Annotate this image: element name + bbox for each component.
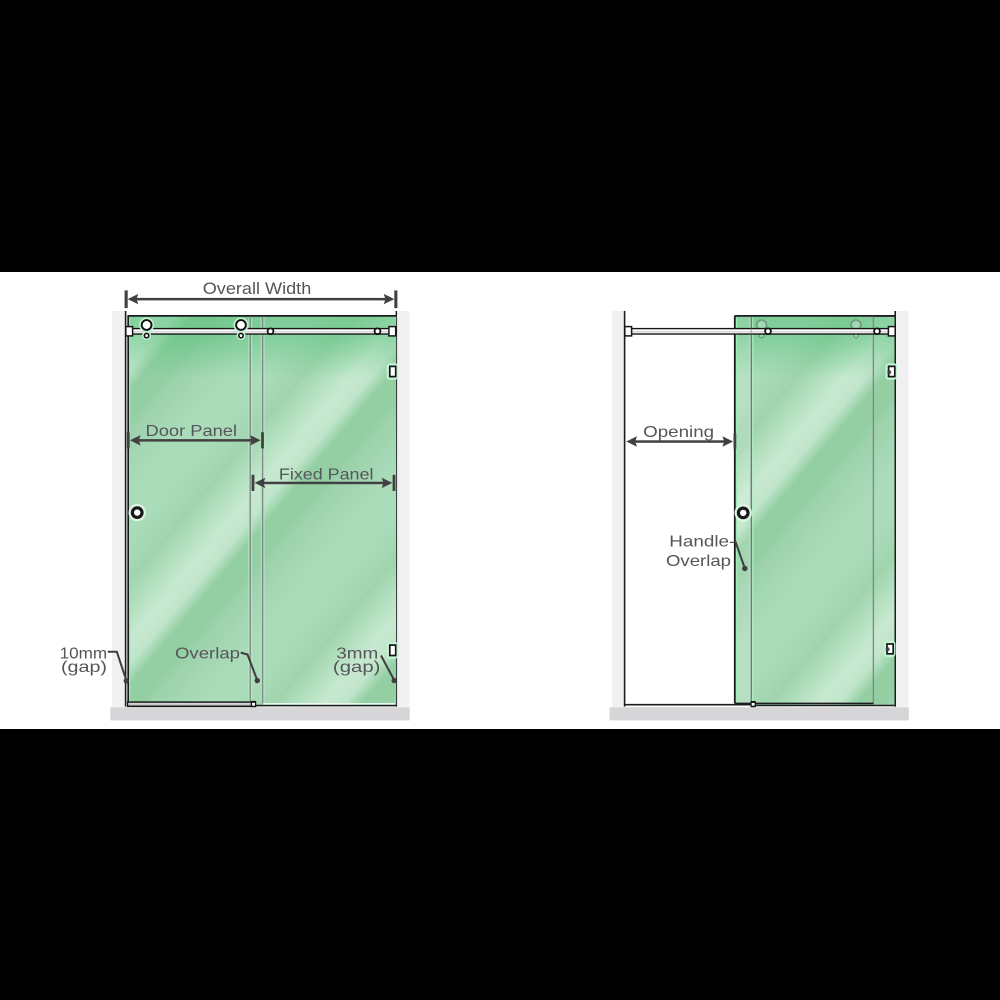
svg-text:Overall Width: Overall Width xyxy=(203,280,312,298)
svg-text:Overlap: Overlap xyxy=(666,553,731,570)
svg-text:Opening: Opening xyxy=(643,424,714,441)
svg-text:Fixed Panel: Fixed Panel xyxy=(279,467,374,484)
svg-text:Overlap: Overlap xyxy=(175,645,240,662)
svg-text:Handle-: Handle- xyxy=(669,534,735,551)
svg-text:Door Panel: Door Panel xyxy=(146,423,238,440)
svg-text:(gap): (gap) xyxy=(61,659,107,676)
svg-text:(gap): (gap) xyxy=(333,659,381,676)
